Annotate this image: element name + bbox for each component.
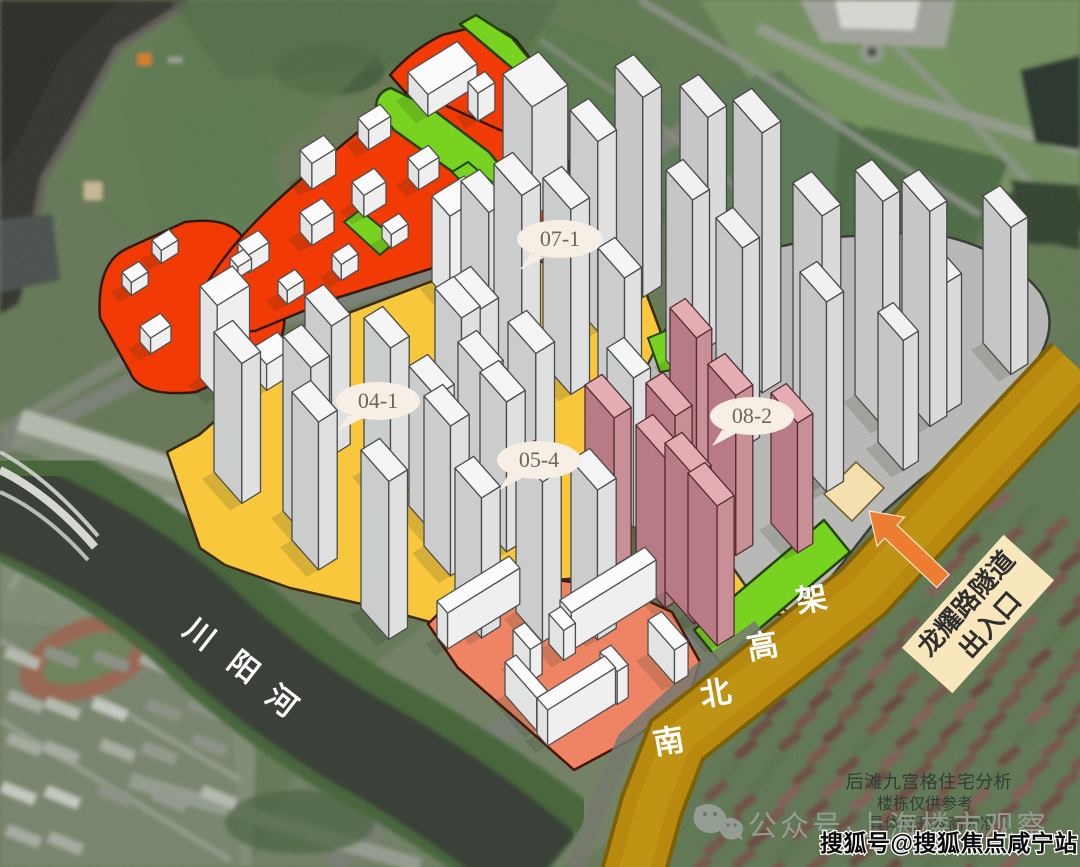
svg-text:南: 南 [650, 721, 687, 761]
svg-text:搜狐号@搜狐焦点咸宁站: 搜狐号@搜狐焦点咸宁站 [820, 830, 1078, 856]
svg-text:08-2: 08-2 [732, 403, 772, 428]
svg-text:07-1: 07-1 [540, 226, 580, 251]
svg-text:后滩九宫格住宅分析: 后滩九宫格住宅分析 [846, 772, 1013, 792]
svg-text:高: 高 [744, 626, 781, 666]
svg-text:04-1: 04-1 [358, 388, 398, 413]
svg-text:北: 北 [697, 673, 734, 713]
svg-text:架: 架 [793, 579, 830, 619]
svg-text:05-4: 05-4 [519, 447, 559, 472]
